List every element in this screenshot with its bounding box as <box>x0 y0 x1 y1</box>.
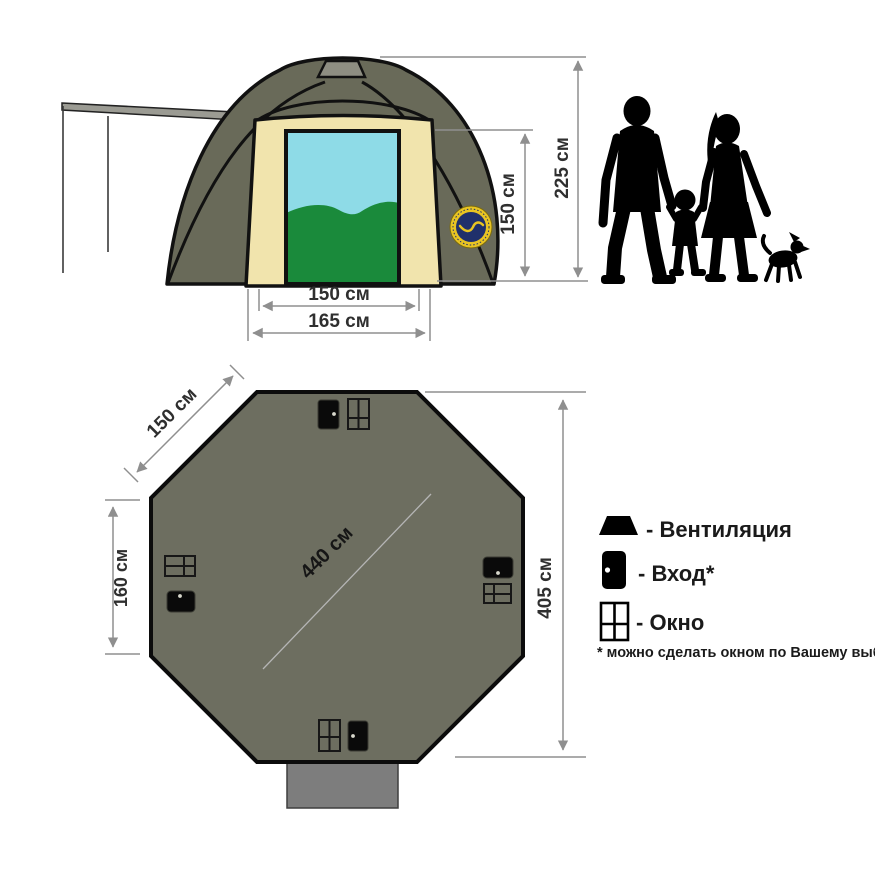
plan-door-bottom-icon <box>348 721 368 751</box>
base-width-label: 165 см <box>308 311 370 332</box>
legend-footnote: * можно сделать окном по Вашему выбору <box>597 645 875 661</box>
dog-silhouette <box>763 232 810 281</box>
total-height-label: 225 см <box>552 137 573 199</box>
door-width-label: 150 см <box>308 284 370 305</box>
window-icon <box>601 603 628 640</box>
plan-side-label: 150 см <box>143 384 201 442</box>
tent-spec-diagram: 150 см 225 см 150 см 165 см <box>0 0 875 875</box>
plan-left-side-label: 160 см <box>111 549 131 607</box>
plan-door-top-icon <box>318 400 339 429</box>
door-icon <box>602 551 626 589</box>
diagram-svg: 150 см 225 см 150 см 165 см <box>0 0 875 875</box>
vestibule <box>287 758 398 808</box>
legend-labels: - Вентиляция - Вход* - Окно * можно сдел… <box>597 517 875 661</box>
man-silhouette <box>601 96 676 284</box>
front-view: 150 см 225 см 150 см 165 см <box>62 57 588 341</box>
floor-octagon <box>151 392 523 762</box>
vent-icon <box>599 516 638 535</box>
woman-silhouette <box>701 112 767 282</box>
brand-badge <box>450 206 492 248</box>
door-height-label: 150 см <box>498 173 519 235</box>
legend-window-label: - Окно <box>636 610 704 635</box>
legend: - Вентиляция - Вход* - Окно * можно сдел… <box>597 516 875 661</box>
plan-width-label: 405 см <box>535 557 556 619</box>
family-silhouette <box>601 96 810 284</box>
roof-vent-icon <box>318 61 365 77</box>
door-hills <box>286 202 399 284</box>
plan-door-left-icon <box>167 591 195 612</box>
floor-plan: 150 см 160 см 405 см 440 см <box>105 365 586 808</box>
legend-vent-label: - Вентиляция <box>646 517 792 542</box>
legend-door-label: - Вход* <box>638 561 715 586</box>
